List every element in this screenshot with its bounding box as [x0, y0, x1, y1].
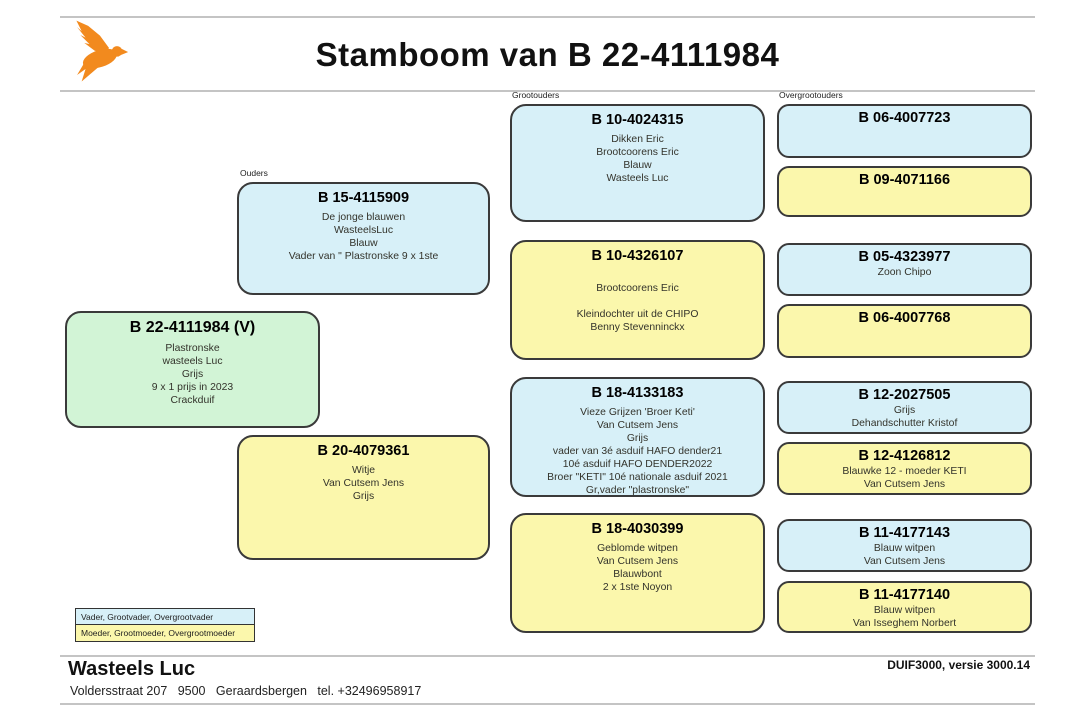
legend-male-row: Vader, Grootvader, Overgrootvader [76, 609, 254, 625]
column-label-great-grandparents: Overgrootouders [779, 90, 843, 100]
great-grandparent-box-4: B 06-4007768 [777, 304, 1032, 358]
great-grandparent-box-8: B 11-4177140 Blauw witpenVan Isseghem No… [777, 581, 1032, 633]
footer-bottom-rule [60, 703, 1035, 705]
owner-address: Voldersstraat 207 9500 Geraardsbergen te… [70, 684, 421, 698]
father-details: De jonge blauwenWasteelsLucBlauwVader va… [239, 211, 488, 263]
ring-number: B 11-4177140 [779, 587, 1030, 603]
subject-details: Plastronskewasteels LucGrijs9 x 1 prijs … [67, 342, 318, 407]
software-version: DUIF3000, versie 3000.14 [887, 658, 1030, 672]
pigeon-details: Dikken EricBrootcoorens EricBlauwWasteel… [512, 133, 763, 185]
ring-number: B 06-4007768 [779, 310, 1030, 326]
grandfather-maternal-box: B 18-4133183 Vieze Grijzen 'Broer Keti'V… [510, 377, 765, 497]
great-grandparent-box-2: B 09-4071166 [777, 166, 1032, 217]
mother-ring-number: B 20-4079361 [239, 443, 488, 459]
header-top-rule [60, 16, 1035, 18]
owner-name: Wasteels Luc [68, 658, 195, 681]
subject-box: B 22-4111984 (V) Plastronskewasteels Luc… [65, 311, 320, 428]
great-grandparent-box-3: B 05-4323977 Zoon Chipo [777, 243, 1032, 296]
pigeon-details: Geblomde witpenVan Cutsem JensBlauwbont2… [512, 542, 763, 594]
pedigree-page: Stamboom van B 22-4111984 Ouders Grootou… [0, 0, 1080, 710]
great-grandparent-box-1: B 06-4007723 [777, 104, 1032, 158]
column-label-parents: Ouders [240, 168, 268, 178]
grandmother-paternal-box: B 10-4326107 Brootcoorens Eric Kleindoch… [510, 240, 765, 360]
ring-number: B 12-4126812 [779, 448, 1030, 464]
color-legend: Vader, Grootvader, Overgrootvader Moeder… [75, 608, 255, 642]
mother-box: B 20-4079361 WitjeVan Cutsem JensGrijs [237, 435, 490, 560]
great-grandparent-box-7: B 11-4177143 Blauw witpenVan Cutsem Jens [777, 519, 1032, 572]
pigeon-details: Blauwke 12 - moeder KETIVan Cutsem Jens [779, 465, 1030, 491]
ring-number: B 12-2027505 [779, 387, 1030, 403]
grandfather-paternal-box: B 10-4024315 Dikken EricBrootcoorens Eri… [510, 104, 765, 222]
ring-number: B 10-4326107 [512, 248, 763, 264]
great-grandparent-box-6: B 12-4126812 Blauwke 12 - moeder KETIVan… [777, 442, 1032, 495]
father-box: B 15-4115909 De jonge blauwenWasteelsLuc… [237, 182, 490, 295]
ring-number: B 18-4133183 [512, 385, 763, 401]
footer-top-rule [60, 655, 1035, 657]
ring-number: B 05-4323977 [779, 249, 1030, 265]
pigeon-details: Blauw witpenVan Cutsem Jens [779, 542, 1030, 568]
great-grandparent-box-5: B 12-2027505 GrijsDehandschutter Kristof [777, 381, 1032, 434]
pigeon-details: Brootcoorens Eric Kleindochter uit de CH… [512, 269, 763, 334]
ring-number: B 11-4177143 [779, 525, 1030, 541]
father-ring-number: B 15-4115909 [239, 190, 488, 206]
pigeon-details: GrijsDehandschutter Kristof [779, 404, 1030, 430]
ring-number: B 10-4024315 [512, 112, 763, 128]
ring-number: B 18-4030399 [512, 521, 763, 537]
ring-number: B 06-4007723 [779, 110, 1030, 126]
ring-number: B 09-4071166 [779, 172, 1030, 188]
legend-female-row: Moeder, Grootmoeder, Overgrootmoeder [76, 625, 254, 641]
pigeon-details: Blauw witpenVan Isseghem Norbert [779, 604, 1030, 630]
pigeon-details: Vieze Grijzen 'Broer Keti'Van Cutsem Jen… [512, 406, 763, 497]
pigeon-details: Zoon Chipo [779, 266, 1030, 279]
mother-details: WitjeVan Cutsem JensGrijs [239, 464, 488, 503]
subject-ring-number: B 22-4111984 (V) [67, 319, 318, 337]
column-label-grandparents: Grootouders [512, 90, 559, 100]
grandmother-maternal-box: B 18-4030399 Geblomde witpenVan Cutsem J… [510, 513, 765, 633]
page-title: Stamboom van B 22-4111984 [60, 36, 1035, 74]
